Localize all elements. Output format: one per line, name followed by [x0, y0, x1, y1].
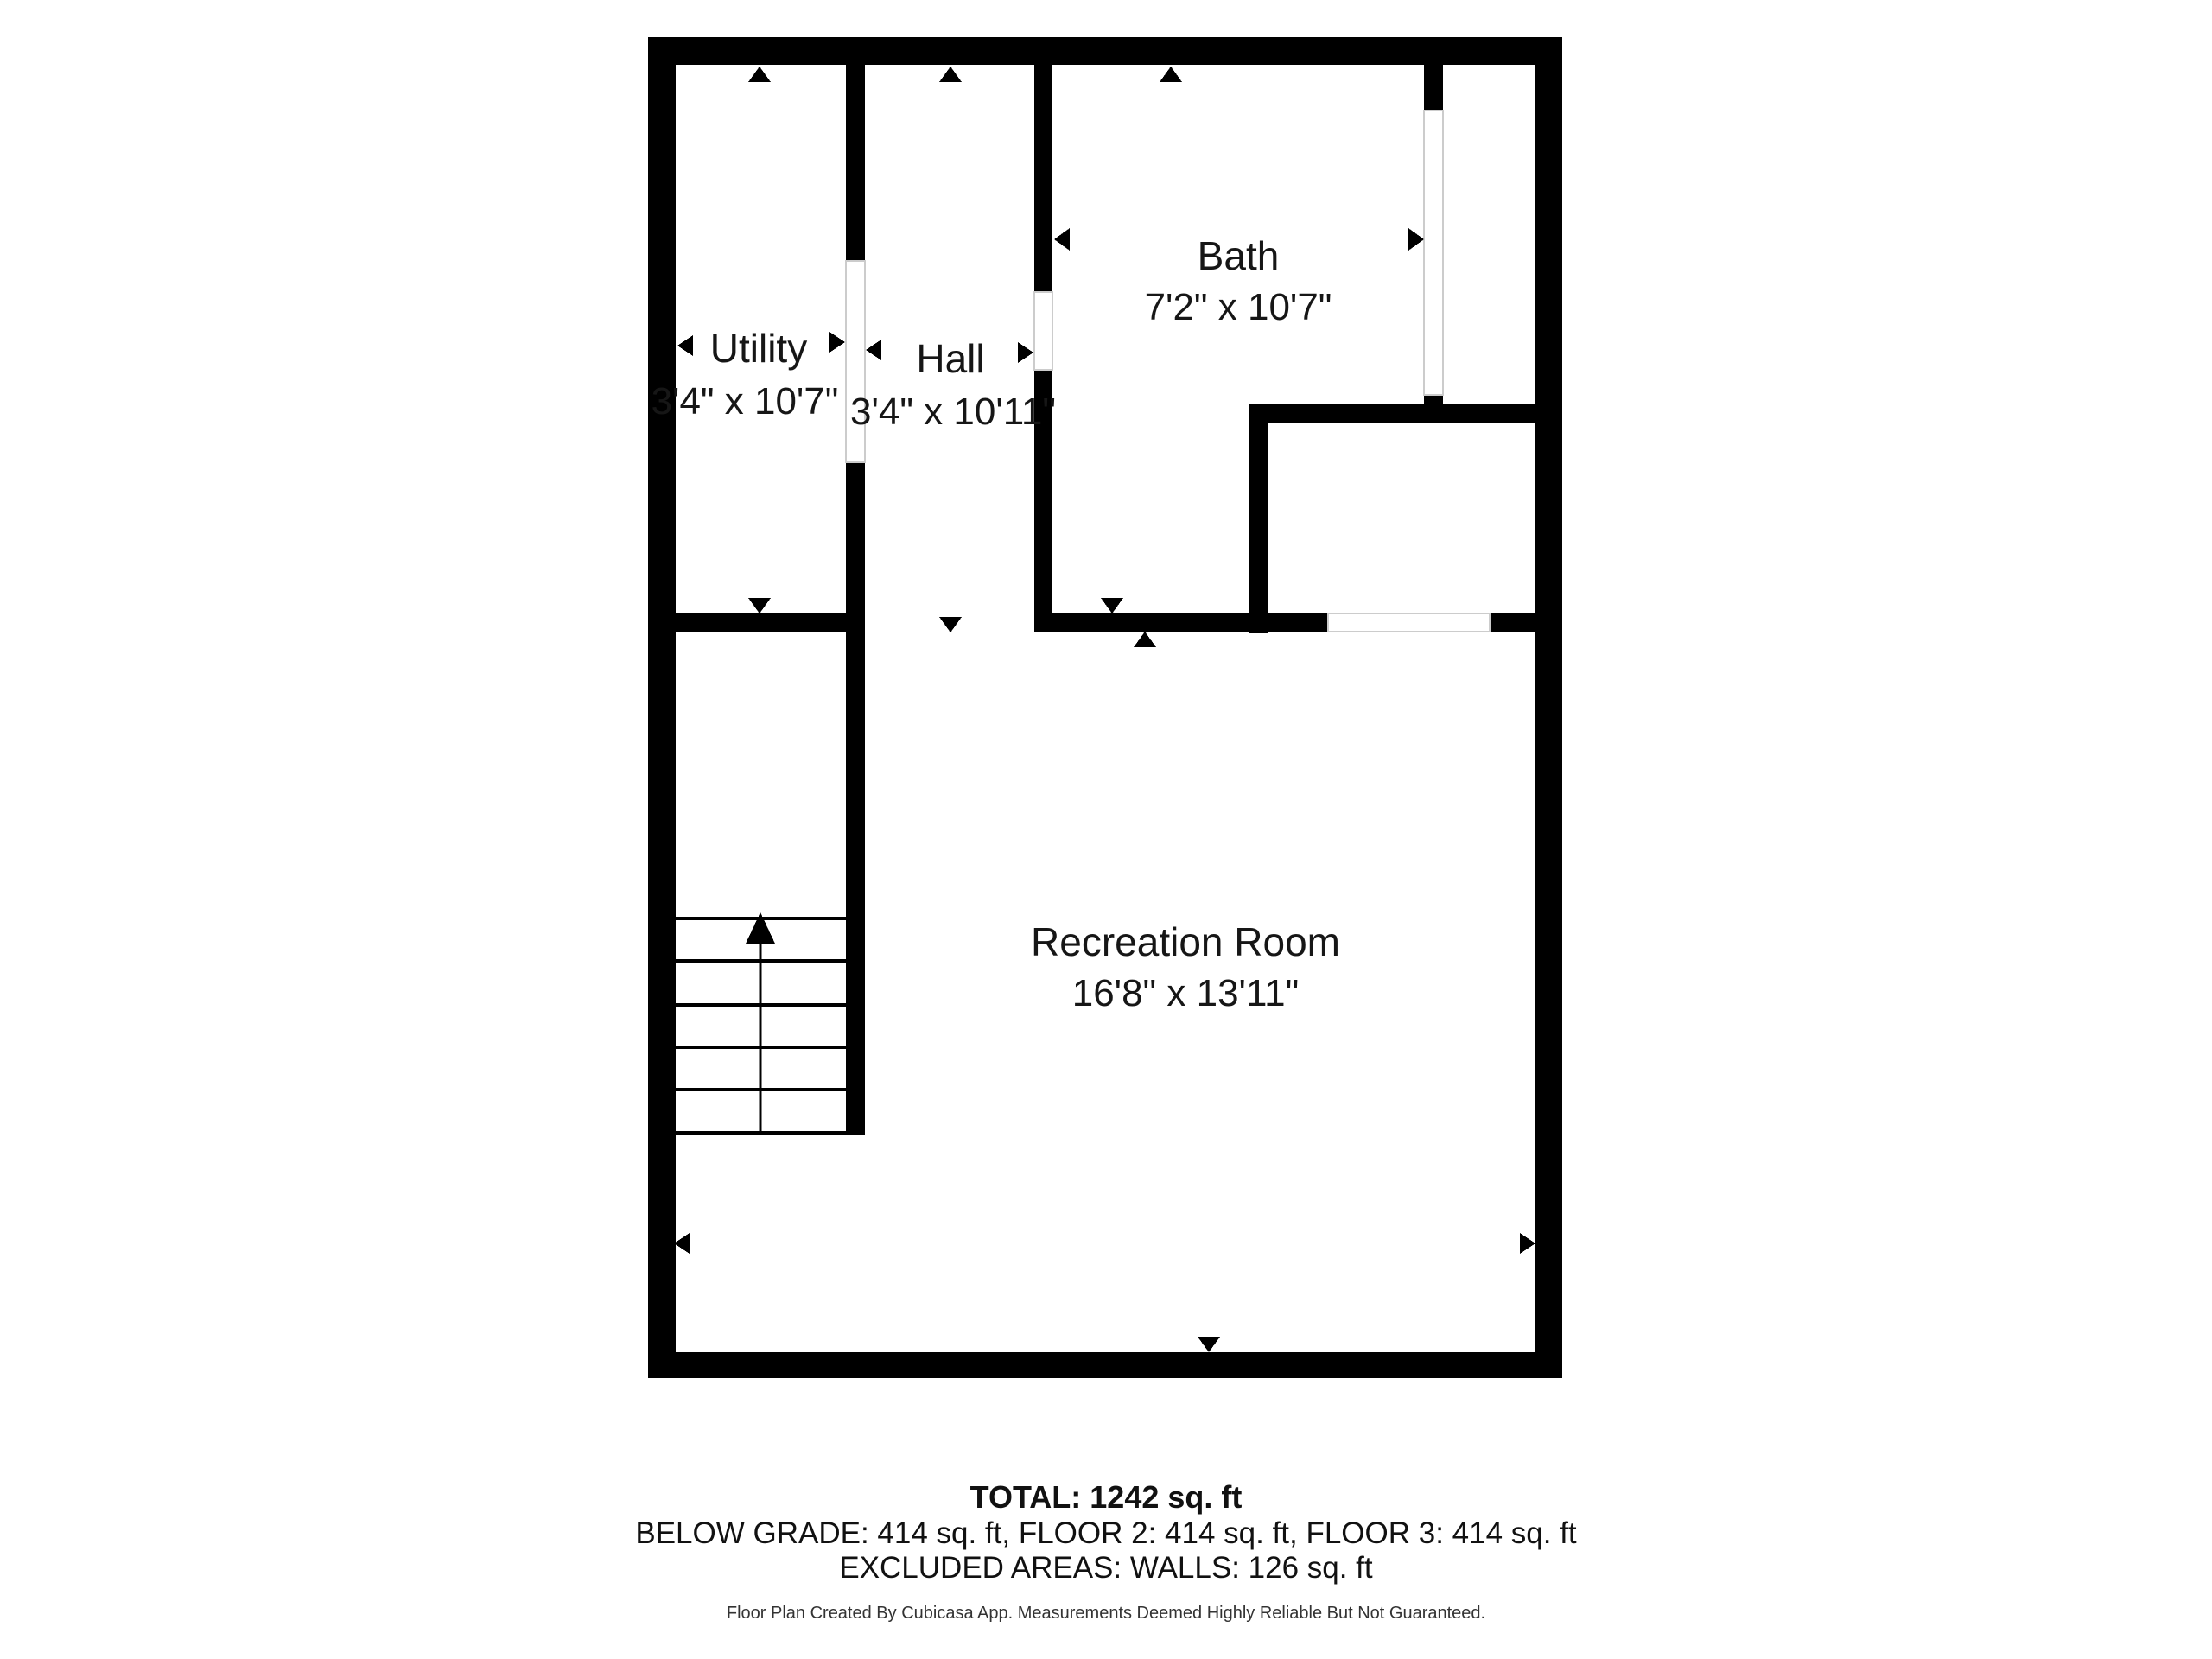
room-label-utility: Utility — [710, 328, 807, 368]
total-area-text: TOTAL: 1242 sq. ft — [0, 1479, 2212, 1516]
wall-hall-bath-upper — [1034, 65, 1052, 292]
opening-recroom-door — [1328, 613, 1490, 632]
extent-marker-left-icon — [677, 335, 693, 356]
opening-bath-side — [1424, 111, 1443, 395]
area-summary: TOTAL: 1242 sq. ft BELOW GRADE: 414 sq. … — [0, 1479, 2212, 1586]
wall-outer-top — [648, 37, 1562, 65]
wall-bath-right-upper-stub — [1424, 65, 1443, 111]
wall-closet-top — [1249, 404, 1562, 423]
extent-marker-left-icon — [674, 1233, 690, 1254]
disclaimer-text: Floor Plan Created By Cubicasa App. Meas… — [0, 1604, 2212, 1624]
window-marker-up-icon — [748, 67, 771, 82]
extent-marker-right-icon — [1018, 342, 1033, 363]
door-marker-down-icon — [1198, 1337, 1220, 1352]
excluded-areas-text: EXCLUDED AREAS: WALLS: 126 sq. ft — [0, 1551, 2212, 1586]
door-marker-left-icon — [1054, 228, 1070, 251]
room-dims-recreation-room: 16'8" x 13'11" — [1072, 975, 1300, 1013]
room-label-hall: Hall — [916, 339, 984, 378]
door-marker-right-icon — [1408, 228, 1424, 251]
opening-hall-bath-door — [1034, 292, 1052, 370]
stairs — [676, 912, 846, 1133]
room-dims-utility: 3'4" x 10'7" — [652, 383, 839, 421]
wall-closet-left — [1249, 404, 1268, 633]
door-marker-down-icon — [748, 598, 771, 613]
markers — [674, 67, 1535, 1352]
floor-areas-text: BELOW GRADE: 414 sq. ft, FLOOR 2: 414 sq… — [0, 1516, 2212, 1551]
extent-marker-right-icon — [1520, 1233, 1535, 1254]
extent-marker-right-icon — [829, 332, 845, 353]
wall-utility-hall-upper — [846, 65, 865, 261]
room-label-recreation-room: Recreation Room — [1031, 922, 1340, 962]
wall-recroom-top-right — [1490, 613, 1562, 632]
wall-outer-bottom — [648, 1352, 1562, 1378]
wall-recroom-top — [1034, 613, 1328, 632]
window-marker-up-icon — [1160, 67, 1182, 82]
wall-utility-bottom — [648, 613, 865, 632]
wall-outer-right — [1535, 37, 1562, 1378]
wall-utility-hall-lower — [846, 462, 865, 1135]
wall-outer-left — [648, 37, 676, 1378]
door-marker-up-icon — [1134, 632, 1156, 647]
window-marker-up-icon — [939, 67, 962, 82]
room-dims-hall: 3'4" x 10'11" — [850, 393, 1056, 431]
room-dims-bath: 7'2" x 10'7" — [1145, 289, 1332, 327]
extent-marker-left-icon — [866, 340, 881, 360]
floor-plan-drawing — [0, 0, 2212, 1659]
door-marker-down-icon — [1101, 598, 1123, 613]
room-label-bath: Bath — [1198, 236, 1280, 276]
door-marker-down-icon — [939, 617, 962, 632]
floor-plan-page: Utility 3'4" x 10'7" Hall 3'4" x 10'11" … — [0, 0, 2212, 1659]
